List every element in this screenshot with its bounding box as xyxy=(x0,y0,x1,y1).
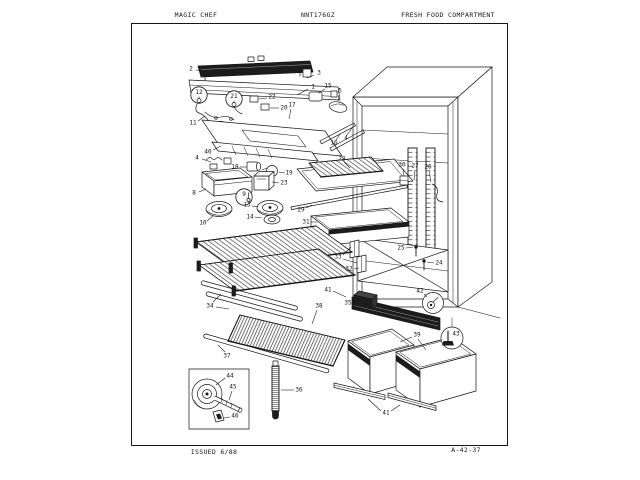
callout-37: 37 xyxy=(223,353,231,360)
callout-43: 43 xyxy=(452,331,460,338)
callout-33: 33 xyxy=(334,254,342,261)
callout-12: 12 xyxy=(195,89,203,96)
callout-lead-17 xyxy=(289,109,291,119)
callout-9: 9 xyxy=(242,191,246,198)
callout-25: 25 xyxy=(397,245,405,252)
callout-44: 44 xyxy=(226,373,234,380)
callout-16: 16 xyxy=(330,140,338,147)
detail-circle-42 xyxy=(423,292,444,314)
callout-18: 18 xyxy=(231,164,239,171)
callout-46: 46 xyxy=(231,413,239,420)
callout-38: 38 xyxy=(315,303,323,310)
callout-20: 20 xyxy=(280,105,288,112)
callout-lead-41b xyxy=(368,399,381,411)
top-grille-panel xyxy=(198,56,313,80)
callout-19: 19 xyxy=(285,170,293,177)
callout-3: 3 xyxy=(317,70,321,77)
callout-2: 2 xyxy=(189,66,193,73)
callout-13: 13 xyxy=(243,202,251,209)
callout-42: 42 xyxy=(416,288,424,295)
callout-36: 36 xyxy=(295,387,303,394)
callout-lead-41b xyxy=(391,405,400,411)
diagram-parts xyxy=(189,56,500,429)
callout-40: 40 xyxy=(204,149,212,156)
callout-35: 35 xyxy=(344,300,352,307)
callout-lead-41 xyxy=(333,291,346,297)
callout-lead-19 xyxy=(279,172,285,173)
callout-11: 11 xyxy=(189,120,197,127)
callout-32: 32 xyxy=(345,266,353,273)
callout-21: 21 xyxy=(230,93,238,100)
callout-4: 4 xyxy=(195,155,199,162)
callout-41: 41 xyxy=(324,287,332,294)
callout-lead-10 xyxy=(207,216,213,221)
callout-4b: 4 xyxy=(344,135,348,142)
wire-shelves xyxy=(194,226,355,296)
callout-lead-34 xyxy=(216,307,229,309)
callout-39: 39 xyxy=(413,332,421,339)
callout-41b: 41 xyxy=(382,410,390,417)
callout-24: 24 xyxy=(435,260,443,267)
callout-30: 30 xyxy=(398,162,406,169)
callout-lead-38 xyxy=(312,310,317,324)
callout-31: 31 xyxy=(302,219,310,226)
scanned-parts-page: { "page": { "paper": "#ffffff", "ink": "… xyxy=(0,0,640,480)
callout-8: 8 xyxy=(192,190,196,197)
callout-28: 28 xyxy=(338,156,346,163)
callout-15: 15 xyxy=(324,83,332,90)
exploded-diagram: 2311551221222017114044161819238913101428… xyxy=(0,0,640,480)
callout-23: 23 xyxy=(280,180,288,187)
callout-lead-37 xyxy=(218,345,225,352)
drain-rod xyxy=(272,361,279,419)
callout-34: 34 xyxy=(206,303,214,310)
callout-1: 1 xyxy=(311,84,315,91)
callout-10: 10 xyxy=(199,220,207,227)
callout-lead-14 xyxy=(255,217,262,218)
callout-14: 14 xyxy=(246,214,254,221)
callout-27: 27 xyxy=(411,163,419,170)
callout-29: 29 xyxy=(297,207,305,214)
callout-26: 26 xyxy=(424,164,432,171)
roller-detail-box xyxy=(189,369,249,429)
callout-17: 17 xyxy=(288,102,296,109)
callout-5: 5 xyxy=(338,88,342,95)
callout-22: 22 xyxy=(268,94,276,101)
callout-45: 45 xyxy=(229,384,237,391)
callout-lead-8 xyxy=(199,189,206,192)
callout-lead-22 xyxy=(259,98,267,99)
